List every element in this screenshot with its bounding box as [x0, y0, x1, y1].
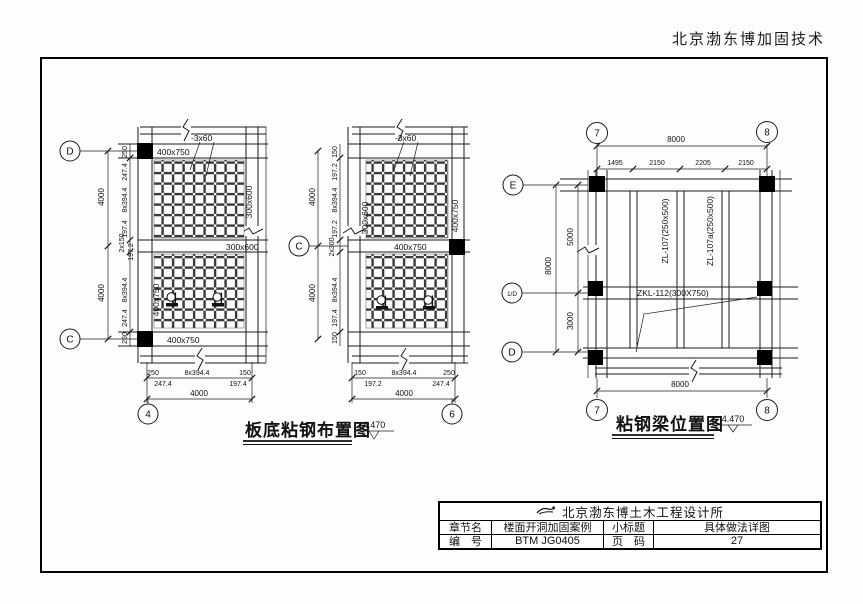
grid-bubble-1D: 1/D [502, 283, 588, 303]
svg-text:7: 7 [594, 406, 600, 417]
svg-text:D: D [66, 147, 73, 158]
break-symbol [689, 360, 699, 382]
dim-inner: 8x394.4 [332, 277, 339, 302]
label-beam-mid: 400x750 [394, 242, 427, 252]
title-block: 北京渤东博土木工程设计所 章节名 楼面开洞加固案例 小标题 具体做法详图 编 号… [438, 501, 822, 550]
dim-inner: 8x394.4 [332, 187, 339, 212]
bonded-steel-mesh-top [366, 160, 448, 238]
chapter-value: 楼面开洞加固案例 [492, 521, 604, 535]
dim-inner: 197.2 [332, 163, 339, 181]
slab-plan-title: 板底粘钢布置图 4.470 [243, 420, 394, 445]
dim-inner: 197.2 [332, 220, 339, 238]
dim-top: 1495 [607, 160, 623, 167]
grid-bubble-4: 4 [138, 404, 158, 424]
institute-name: 北京渤东博土木工程设计所 [562, 503, 724, 521]
slab-plan-left: 400x750 -3x60 300x600 300x600 400x750 40… [60, 119, 268, 424]
subtitle-label: 小标题 [604, 521, 654, 535]
dim-inner: 247.4 [122, 163, 129, 181]
grid-bubble-D: D [502, 342, 588, 362]
grid-bubble-8-top: 8 [757, 122, 778, 143]
institute-logo-icon [536, 505, 556, 519]
beam-plan-title: 粘钢梁位置图 4.470 [612, 414, 752, 439]
dim-bottom-total: 8000 [671, 380, 689, 389]
dim-bottom: 250 [443, 370, 455, 377]
dim-outer-top: 4000 [97, 188, 106, 206]
dim-inner: 250 [122, 332, 129, 344]
dim-top: 2205 [695, 160, 711, 167]
grid-bubble-7-bottom: 7 [587, 400, 608, 421]
column-square [757, 350, 772, 365]
zkl-leader-line [636, 297, 757, 352]
dim-left-total: 8000 [544, 257, 553, 275]
grid-bubble-8-bottom: 8 [757, 400, 778, 421]
dim-outer-top: 4000 [308, 188, 317, 206]
dim-inner: 150 [332, 332, 339, 344]
number-label: 编 号 [440, 535, 492, 549]
dim-bottom: 150 [354, 370, 366, 377]
grid-bubble-7-top: 7 [587, 123, 608, 144]
svg-text:1/D: 1/D [507, 291, 517, 298]
column-square [757, 281, 772, 296]
column-square [137, 143, 153, 159]
diagram-title: 粘钢梁位置图 [616, 414, 724, 434]
label-beam-top: 400x750 [157, 147, 190, 157]
dim-outer-bottom: 4000 [97, 284, 106, 302]
dim-bottom-total: 4000 [395, 389, 413, 398]
column-square [449, 239, 465, 255]
grid-bubble-E: E [503, 175, 588, 195]
number-value: BTM JG0405 [492, 535, 604, 549]
svg-text:4.470: 4.470 [363, 420, 386, 430]
page-label: 页 码 [604, 535, 654, 549]
label-beam-left: 300x600 [360, 201, 370, 234]
dim-bottom2: 247.4 [432, 381, 450, 388]
dim-bottom2: 247.4 [154, 381, 172, 388]
break-symbol [577, 245, 599, 255]
dim-outer-bottom: 4000 [308, 284, 317, 302]
label-strip: -3x60 [395, 133, 417, 143]
dim-inner: 197.2 [128, 243, 135, 261]
svg-text:C: C [66, 335, 73, 346]
svg-text:8: 8 [764, 128, 770, 139]
svg-text:4: 4 [145, 410, 151, 421]
grid-bubble-6: 6 [442, 404, 462, 424]
bonded-steel-mesh-bottom [154, 254, 244, 328]
label-zl-107: ZL-107(250x500) [660, 198, 670, 263]
dim-bottom-total: 4000 [190, 389, 208, 398]
dim-inner: 8x394.4 [122, 187, 129, 212]
column-square [137, 331, 153, 347]
svg-text:C: C [295, 242, 302, 253]
label-beam-left: 400x750 [151, 283, 161, 316]
label-beam-right: 300x600 [244, 185, 254, 218]
column-square [588, 350, 603, 365]
svg-text:7: 7 [594, 129, 600, 140]
slab-plan-middle: -3x60 300x600 400x750 400x750 4000 4000 … [289, 119, 470, 424]
break-symbol [241, 226, 263, 236]
svg-text:4.470: 4.470 [722, 414, 745, 424]
dim-top: 2150 [649, 160, 665, 167]
dim-top-total: 8000 [667, 135, 685, 144]
diagram-title: 板底粘钢布置图 [245, 420, 371, 440]
dim-inner: 250 [122, 146, 129, 158]
dim-bottom: 150 [239, 370, 251, 377]
column-square [589, 176, 605, 192]
bonded-steel-mesh-top [154, 160, 244, 238]
chapter-label: 章节名 [440, 521, 492, 535]
dim-inner: 8x394.4 [122, 277, 129, 302]
dim-inner: 197.4 [332, 309, 339, 327]
label-beam-right: 400x750 [450, 199, 460, 232]
dim-left-lower: 3000 [566, 312, 575, 330]
svg-text:E: E [510, 181, 517, 192]
dim-left-upper: 5000 [566, 228, 575, 246]
dim-bottom2: 197.2 [364, 381, 382, 388]
column-square [588, 281, 603, 296]
svg-text:8: 8 [764, 406, 770, 417]
label-beam-mid: 300x600 [226, 242, 259, 252]
bonded-steel-mesh-bottom [366, 254, 448, 328]
beam-plan-right: ZL-107(250x500) ZL-107a(250x500) ZKL-112… [502, 122, 798, 421]
label-zkl-112: ZKL-112(300X750) [637, 288, 709, 298]
svg-text:D: D [508, 348, 515, 359]
label-zl-107a: ZL-107a(250x500) [705, 196, 715, 266]
page-value: 27 [654, 535, 820, 549]
break-symbol [195, 348, 205, 370]
column-square [759, 176, 775, 192]
break-symbol [399, 348, 409, 370]
dim-bottom: 8x394.4 [185, 370, 210, 377]
dim-bottom: 250 [147, 370, 159, 377]
dim-inner: 2x300 [329, 237, 336, 256]
svg-text:6: 6 [449, 410, 455, 421]
dim-bottom2: 197.4 [229, 381, 247, 388]
dim-bottom: 8x394.4 [392, 370, 417, 377]
dim-inner: 2x150 [119, 233, 126, 252]
dim-inner: 247.4 [122, 309, 129, 327]
label-beam-bottom: 400x750 [167, 335, 200, 345]
subtitle-value: 具体做法详图 [654, 521, 820, 535]
title-block-company-row: 北京渤东博土木工程设计所 [440, 503, 820, 521]
label-strip: -3x60 [191, 133, 213, 143]
break-symbol [181, 119, 191, 141]
dim-top: 2150 [738, 160, 754, 167]
dim-inner: 150 [332, 146, 339, 158]
